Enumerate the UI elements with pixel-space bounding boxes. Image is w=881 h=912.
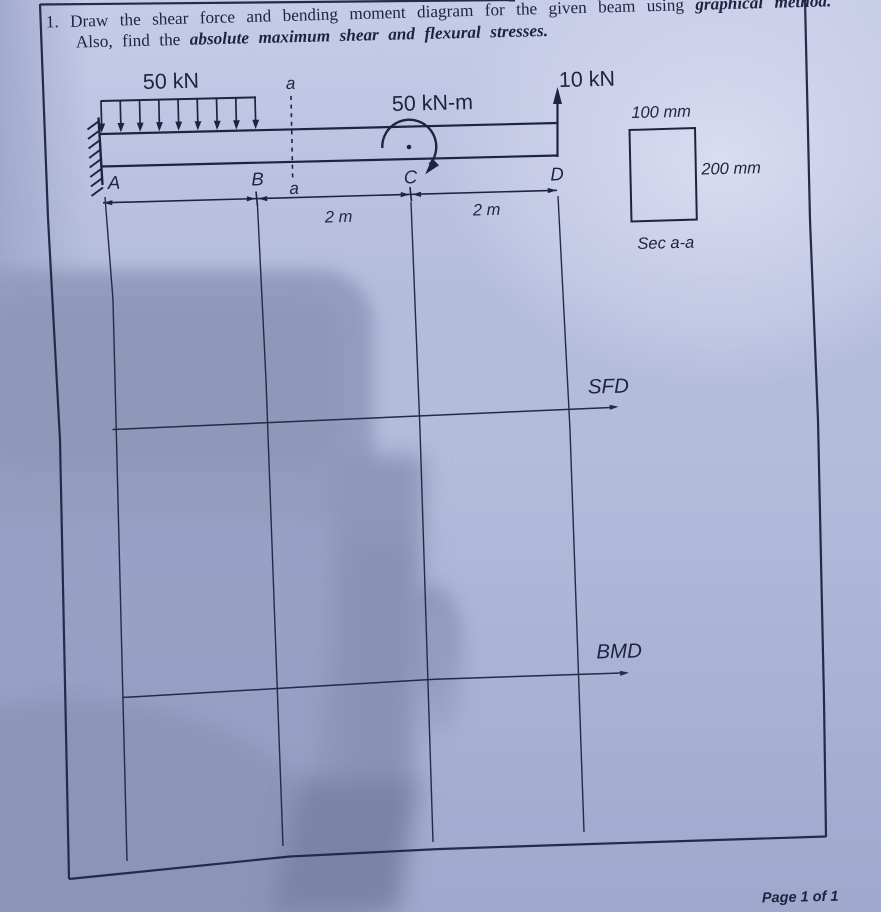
svg-text:10 kN: 10 kN bbox=[559, 67, 616, 92]
svg-text:2 m: 2 m bbox=[472, 201, 501, 220]
svg-text:Page 1 of 1: Page 1 of 1 bbox=[762, 889, 839, 907]
svg-text:50 kN-m: 50 kN-m bbox=[392, 90, 474, 116]
svg-text:50 kN: 50 kN bbox=[143, 69, 200, 94]
svg-text:a: a bbox=[286, 74, 296, 93]
svg-text:2 m: 2 m bbox=[324, 208, 353, 227]
svg-text:B: B bbox=[251, 168, 264, 189]
svg-text:A: A bbox=[107, 172, 121, 193]
svg-text:100 mm: 100 mm bbox=[631, 103, 691, 122]
svg-text:C: C bbox=[404, 166, 419, 187]
svg-text:BMD: BMD bbox=[596, 639, 642, 663]
svg-text:Sec a-a: Sec a-a bbox=[637, 234, 694, 253]
svg-text:a: a bbox=[289, 179, 299, 198]
svg-text:SFD: SFD bbox=[588, 374, 630, 398]
svg-text:200 mm: 200 mm bbox=[700, 159, 761, 178]
svg-text:D: D bbox=[550, 163, 564, 184]
